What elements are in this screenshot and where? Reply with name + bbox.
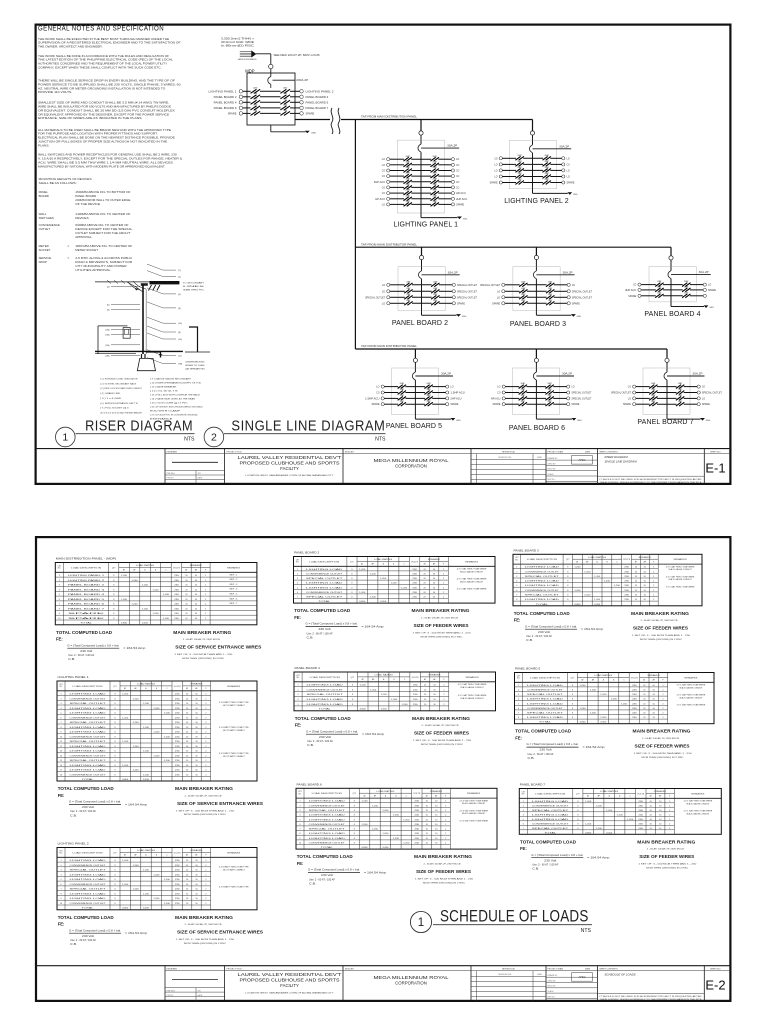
- svg-text:2: 2: [205, 580, 206, 582]
- svg-text:8: 8: [60, 727, 61, 729]
- svg-text:230 Volt: 230 Volt: [82, 806, 95, 809]
- svg-text:LOAD RATING: LOAD RATING: [588, 556, 607, 559]
- svg-text:8: 8: [354, 810, 355, 812]
- svg-text:8: 8: [577, 805, 578, 807]
- svg-text:NO.: NO.: [58, 568, 62, 570]
- svg-text:BREAKER: BREAKER: [648, 674, 661, 677]
- svg-text:LIGHTING LOAD: LIGHTING LOAD: [70, 731, 107, 734]
- svg-text:48 X 18 WATT COMPACT: 48 X 18 WATT COMPACT: [223, 868, 246, 871]
- svg-text:RISER TO LOAD: RISER TO LOAD: [186, 364, 205, 367]
- svg-text:8: 8: [577, 828, 578, 830]
- svg-text:THEIR SURVEY, ISSUED EXPRESS: THEIR SURVEY, ISSUED EXPRESSLY TO THE PR…: [600, 481, 703, 484]
- svg-text:LO: LO: [497, 289, 500, 293]
- svg-text:230: 230: [174, 613, 179, 615]
- svg-text:LIGHTING PANEL 1: LIGHTING PANEL 1: [393, 222, 458, 229]
- svg-text:LOAD RATING: LOAD RATING: [594, 674, 613, 677]
- svg-text:A: A: [144, 569, 146, 572]
- svg-text:8: 8: [351, 578, 352, 580]
- svg-text:4: 4: [299, 815, 300, 817]
- svg-text:PANEL BOARD 7: PANEL BOARD 7: [520, 783, 546, 787]
- svg-text:230: 230: [412, 569, 417, 571]
- svg-text:AF: AF: [592, 679, 594, 682]
- svg-text:20AT: 20AT: [433, 177, 438, 180]
- svg-text:8: 8: [114, 727, 115, 729]
- svg-text:CO: CO: [382, 169, 385, 173]
- svg-text:20: 20: [185, 604, 187, 606]
- svg-text:in 80mm(D) RSC: in 80mm(D) RSC: [221, 44, 254, 48]
- svg-text:2 - 60 AT/ 100 AF, 2P, 230V MC: 2 - 60 AT/ 100 AF, 2P, 230V MCCB: [421, 616, 459, 619]
- svg-text:2 - 60 AT/ 100 AF, 2P, 230V MC: 2 - 60 AT/ 100 AF, 2P, 230V MCCB: [424, 862, 462, 865]
- svg-text:5: 5: [297, 587, 298, 589]
- svg-text:REMARKS: REMARKS: [227, 851, 241, 854]
- svg-text:LO: LO: [567, 168, 570, 172]
- svg-text:CONVENIENCE OUTLET: CONVENIENCE OUTLET: [525, 590, 560, 592]
- svg-text:1,200: 1,200: [133, 746, 139, 748]
- svg-text:SPECIAL OUTLET: SPECIAL OUTLET: [70, 721, 108, 724]
- svg-text:50: 50: [433, 689, 435, 691]
- svg-text:NTS: NTS: [375, 437, 386, 443]
- svg-text:230: 230: [175, 884, 180, 886]
- svg-text:BREAKER: BREAKER: [428, 558, 441, 561]
- svg-text:QTY: QTY: [113, 686, 117, 688]
- svg-text:SPECIAL OUTLET: SPECIAL OUTLET: [572, 295, 592, 299]
- svg-text:LO: LO: [571, 385, 574, 389]
- svg-text:LAUREL VALLEY RESIDENTIAL DEV': LAUREL VALLEY RESIDENTIAL DEV'T: [238, 972, 342, 977]
- svg-text:20: 20: [424, 578, 426, 580]
- svg-text:SIZE OF FEEDER WIRES: SIZE OF FEEDER WIRES: [633, 626, 688, 631]
- svg-text:20: 20: [186, 860, 188, 862]
- svg-text:2: 2: [205, 865, 206, 867]
- svg-text:1,200: 1,200: [133, 770, 139, 772]
- svg-text:G = (Total Computed Load) x 0.: G = (Total Computed Load) x 0.8 + bal.: [306, 730, 358, 733]
- svg-text:230: 230: [624, 581, 629, 583]
- svg-text:PANEL BOARD 7: PANEL BOARD 7: [637, 419, 693, 426]
- svg-text:TOTAL COMPUTED LOAD: TOTAL COMPUTED LOAD: [58, 786, 115, 791]
- svg-text:Use: 2 - 60 AT / 100 AF: Use: 2 - 60 AT / 100 AF: [528, 753, 555, 756]
- svg-text:SHEET CONTENTS: SHEET CONTENTS: [599, 451, 618, 453]
- svg-text:C.B.: C.B.: [307, 637, 314, 640]
- svg-text:50: 50: [195, 774, 197, 776]
- svg-text:2: 2: [205, 694, 206, 696]
- svg-text:OF THE DEVICE: OF THE DEVICE: [75, 202, 100, 206]
- svg-text:LOAD RATING: LOAD RATING: [376, 790, 395, 793]
- svg-text:AF: AF: [435, 795, 437, 798]
- svg-text:30A,2P: 30A,2P: [562, 373, 573, 376]
- svg-text:CO: CO: [628, 385, 631, 389]
- svg-text:4,800: 4,800: [122, 908, 128, 910]
- svg-text:20: 20: [185, 599, 187, 601]
- svg-text:20AT: 20AT: [433, 280, 438, 283]
- svg-text:7: 7: [299, 829, 300, 831]
- svg-text:REVISION DES.: REVISION DES.: [498, 457, 512, 459]
- svg-text:A: A: [603, 679, 605, 682]
- svg-text:4 X 5 GAT TWIN / TUBE WERE: 4 X 5 GAT TWIN / TUBE WERE: [677, 694, 706, 697]
- svg-text:50: 50: [433, 587, 435, 589]
- svg-text:CONVENIENCE OUTLET: CONVENIENCE OUTLET: [70, 884, 107, 886]
- svg-text:B: B: [156, 855, 158, 857]
- svg-text:1,200: 1,200: [362, 801, 368, 803]
- svg-text:LOAD DESCRIPTION: LOAD DESCRIPTION: [530, 676, 561, 679]
- svg-text:230: 230: [175, 765, 180, 767]
- svg-text:8: 8: [113, 599, 114, 601]
- svg-text:2: 2: [205, 713, 206, 715]
- svg-text:230: 230: [415, 805, 420, 807]
- svg-text:1,200: 1,200: [153, 589, 159, 591]
- svg-text:LIGHTING LOAD: LIGHTING LOAD: [70, 859, 107, 862]
- svg-text:AF: AF: [586, 561, 588, 564]
- svg-text:230: 230: [175, 708, 180, 710]
- svg-text:1,200: 1,200: [596, 828, 602, 830]
- svg-text:20: 20: [426, 833, 428, 835]
- svg-text:2: 2: [60, 698, 61, 700]
- svg-text:VOLTS: VOLTS: [631, 677, 639, 679]
- svg-text:LO: LO: [376, 385, 379, 389]
- svg-text:1,200: 1,200: [617, 814, 623, 816]
- svg-text:GND.: GND.: [573, 194, 578, 196]
- svg-text:MDP - 3: MDP - 3: [230, 584, 238, 586]
- svg-text:TOTAL: TOTAL: [318, 600, 332, 603]
- svg-text:REMARKS: REMARKS: [227, 566, 241, 569]
- svg-text:LIGHTING LOAD: LIGHTING LOAD: [70, 745, 107, 748]
- svg-text:3: 3: [299, 810, 300, 812]
- svg-text:20AT: 20AT: [406, 287, 411, 290]
- svg-text:CONVENIENCE OUTLET: CONVENIENCE OUTLET: [309, 805, 346, 807]
- svg-text:4,800: 4,800: [362, 847, 368, 849]
- svg-text:2: 2: [443, 583, 444, 585]
- svg-text:1,200: 1,200: [359, 592, 365, 594]
- svg-text:20: 20: [186, 898, 188, 900]
- svg-text:MDP - 5: MDP - 5: [230, 594, 238, 596]
- svg-text:SHALL BE AS FOLLOWS:: SHALL BE AS FOLLOWS:: [39, 181, 77, 185]
- svg-text:230: 230: [624, 599, 629, 601]
- svg-text:VOLTS: VOLTS: [173, 567, 181, 569]
- svg-text:CONVENIENCE OUTLET: CONVENIENCE OUTLET: [70, 736, 107, 738]
- svg-text:SPARE: SPARE: [708, 288, 716, 292]
- svg-text:6: 6: [59, 599, 60, 601]
- svg-text:C: C: [166, 688, 168, 690]
- svg-text:BUILDER: BUILDER: [345, 451, 354, 453]
- svg-text:230: 230: [415, 815, 420, 817]
- svg-text:20: 20: [186, 751, 188, 753]
- svg-text:PTR NO: PTR NO: [167, 478, 174, 480]
- svg-text:8: 8: [113, 608, 114, 610]
- svg-text:20AT: 20AT: [651, 394, 656, 397]
- svg-text:SINGLE LINE DIAGRAM: SINGLE LINE DIAGRAM: [231, 419, 385, 435]
- svg-text:2: 2: [205, 765, 206, 767]
- svg-text:20: 20: [424, 704, 426, 706]
- svg-text:50: 50: [435, 805, 437, 807]
- svg-text:2: 2: [653, 599, 654, 601]
- svg-text:AF: AF: [433, 678, 435, 681]
- svg-text:SPECIAL OUTLET: SPECIAL OUTLET: [571, 396, 591, 400]
- svg-text:2: 2: [445, 810, 446, 812]
- svg-text:8: 8: [299, 833, 300, 835]
- svg-text:G = (Total Computed Load) x 0.: G = (Total Computed Load) x 0.8 + bal.: [69, 801, 121, 804]
- svg-text:1,200: 1,200: [121, 575, 127, 577]
- svg-text:7: 7: [60, 889, 61, 891]
- svg-text:20: 20: [424, 699, 426, 701]
- svg-text:20: 20: [424, 587, 426, 589]
- svg-text:2: 2: [205, 604, 206, 606]
- svg-text:UTILITIES APPROVAL.: UTILITIES APPROVAL.: [75, 268, 111, 272]
- svg-text:8: 8: [567, 571, 568, 573]
- svg-text:1,200: 1,200: [142, 608, 148, 610]
- svg-text:LIGHTING LOAD: LIGHTING LOAD: [532, 813, 570, 816]
- svg-text:50: 50: [435, 843, 437, 845]
- svg-text:20: 20: [185, 585, 187, 587]
- svg-text:50: 50: [433, 699, 435, 701]
- svg-text:2: 2: [523, 805, 524, 807]
- svg-text:50: 50: [653, 708, 655, 710]
- svg-text:230: 230: [175, 903, 180, 905]
- svg-text:TOTAL: TOTAL: [539, 721, 553, 724]
- svg-text:LOAD DESCRIPTION: LOAD DESCRIPTION: [71, 566, 102, 569]
- svg-text:3,450: 3,450: [380, 601, 386, 603]
- svg-text:TOTAL: TOTAL: [82, 907, 96, 910]
- svg-text:SPARE: SPARE: [456, 202, 464, 206]
- svg-text:1,200: 1,200: [590, 713, 596, 715]
- svg-text:1 SET OF: 3 - 500 MCM THHN AND: 1 SET OF: 3 - 500 MCM THHN AND 1 - 250: [176, 809, 235, 812]
- svg-text:DATE: DATE: [198, 994, 203, 997]
- svg-text:LO: LO: [382, 202, 385, 206]
- svg-text:TOTAL: TOTAL: [319, 708, 333, 711]
- svg-text:2: 2: [516, 571, 517, 573]
- svg-text:1: 1: [418, 917, 424, 929]
- svg-text:SHEET CONTENTS: SHEET CONTENTS: [599, 969, 618, 971]
- svg-text:1,200: 1,200: [153, 755, 159, 757]
- svg-text:CONVENIENCE OUTLET: CONVENIENCE OUTLET: [307, 689, 345, 691]
- svg-text:Use: 2 - 60 AT / 100 AF: Use: 2 - 60 AT / 100 AF: [532, 864, 559, 867]
- svg-text:GND.: GND.: [311, 133, 317, 135]
- svg-text:LIGHTING PANEL 2: LIGHTING PANEL 2: [68, 579, 106, 582]
- svg-text:50: 50: [195, 884, 197, 886]
- svg-text:2: 2: [205, 618, 206, 620]
- svg-text:2: 2: [662, 717, 663, 719]
- svg-text:20AT: 20AT: [545, 172, 550, 175]
- svg-text:LIGHTING PANEL 1: LIGHTING PANEL 1: [209, 89, 237, 93]
- svg-text:( 1 ) FLEXIBLE COND. INSULATOR: ( 1 ) FLEXIBLE COND. INSULATOR: [100, 378, 138, 381]
- svg-text:30A,2P: 30A,2P: [447, 145, 458, 148]
- svg-text:50: 50: [195, 698, 197, 700]
- svg-text:THE OWNER, ARCHITECT AND ENGIN: THE OWNER, ARCHITECT AND ENGINEER.: [38, 45, 103, 49]
- svg-text:TOTAL COMPUTED LOAD: TOTAL COMPUTED LOAD: [294, 608, 351, 613]
- svg-text:A: A: [597, 561, 599, 564]
- svg-text:8: 8: [114, 736, 115, 738]
- svg-text:1,200: 1,200: [600, 717, 606, 719]
- svg-text:4 X 8 WATT TWIN / TUBE TYPE: 4 X 8 WATT TWIN / TUBE TYPE: [219, 866, 249, 869]
- svg-text:1,200: 1,200: [164, 760, 170, 762]
- svg-text:1,200: 1,200: [372, 805, 378, 807]
- svg-text:LIGHTING LOAD: LIGHTING LOAD: [525, 584, 560, 587]
- svg-text:4,800: 4,800: [360, 709, 366, 711]
- svg-text:4 X 5 GAT TWIN / TUBE WERE: 4 X 5 GAT TWIN / TUBE WERE: [458, 683, 487, 686]
- svg-text:IN A 20 GAUGE CONDUIT: IN A 20 GAUGE CONDUIT: [461, 686, 485, 689]
- svg-text:8: 8: [351, 574, 352, 576]
- svg-text:20AT: 20AT: [548, 293, 553, 296]
- svg-text:MAIN BREAKER RATING: MAIN BREAKER RATING: [637, 839, 695, 844]
- svg-text:6: 6: [60, 884, 61, 886]
- svg-text:PANEL BOARD 4: PANEL BOARD 4: [68, 593, 106, 596]
- svg-text:8: 8: [60, 893, 61, 895]
- svg-text:1,200: 1,200: [122, 884, 128, 886]
- svg-text:1,200: 1,200: [143, 774, 149, 776]
- svg-text:8: 8: [114, 879, 115, 881]
- svg-text:IT SHOULD NOT BE USED FOR A DI: IT SHOULD NOT BE USED FOR A DIFFERENT PR…: [600, 478, 703, 481]
- svg-text:(10): (10): [178, 323, 182, 325]
- svg-text:20: 20: [424, 592, 426, 594]
- svg-text:8: 8: [516, 599, 517, 601]
- svg-text:8: 8: [354, 805, 355, 807]
- svg-text:4,800: 4,800: [122, 779, 128, 781]
- svg-text:1,200: 1,200: [585, 801, 591, 803]
- svg-text:9: 9: [60, 898, 61, 900]
- svg-text:4 X 5 GAT TWIN / TUBE WERE: 4 X 5 GAT TWIN / TUBE WERE: [666, 575, 695, 578]
- svg-text:(3): (3): [107, 310, 110, 312]
- svg-text:2: 2: [205, 746, 206, 748]
- svg-text:230: 230: [175, 703, 180, 705]
- svg-text:THEIR SURVEY, ISSUED EXPRESS: THEIR SURVEY, ISSUED EXPRESSLY TO THE PR…: [600, 998, 703, 1001]
- svg-text:PANEL BOARD 2: PANEL BOARD 2: [294, 551, 320, 555]
- svg-text:PROPOSED CLUBHOUSE AND SPORTS: PROPOSED CLUBHOUSE AND SPORTS: [240, 978, 340, 983]
- svg-text:SERVICE ENTRANCE: SERVICE ENTRANCE: [238, 58, 257, 61]
- svg-text:SCALE:: SCALE:: [548, 473, 555, 476]
- svg-text:8: 8: [113, 594, 114, 596]
- svg-text:GND.: GND.: [456, 420, 461, 422]
- svg-text:50: 50: [435, 838, 437, 840]
- svg-text:3: 3: [59, 585, 60, 587]
- svg-text:1 SET OF: 3 - 500 MCM THHN AND: 1 SET OF: 3 - 500 MCM THHN AND 1 - 250: [632, 634, 691, 637]
- svg-text:50: 50: [433, 569, 435, 571]
- svg-text:20AT: 20AT: [517, 172, 522, 175]
- svg-text:MAIN BREAKER RATING: MAIN BREAKER RATING: [631, 611, 689, 616]
- svg-text:SCHEDULE OF LOADS: SCHEDULE OF LOADS: [605, 972, 636, 976]
- svg-text:NTS: NTS: [581, 928, 592, 934]
- svg-text:20AT: 20AT: [521, 299, 526, 302]
- svg-text:2: 2: [445, 843, 446, 845]
- svg-text:G = (Total Computed Load) x 0.: G = (Total Computed Load) x 0.8 + bal.: [306, 623, 358, 626]
- svg-text:20: 20: [650, 810, 652, 812]
- svg-text:20: 20: [186, 755, 188, 757]
- svg-text:50: 50: [435, 815, 437, 817]
- svg-text:20AT: 20AT: [517, 178, 522, 181]
- svg-text:= 164.54 Amp: = 164.54 Amp: [362, 733, 385, 736]
- svg-text:MAIN BREAKER RATING: MAIN BREAKER RATING: [173, 630, 231, 635]
- svg-text:20: 20: [185, 608, 187, 610]
- svg-text:3,450: 3,450: [143, 908, 149, 910]
- svg-text:CO: CO: [456, 174, 459, 178]
- svg-text:UNDERGROUND: UNDERGROUND: [186, 362, 205, 364]
- svg-text:4: 4: [297, 583, 298, 585]
- svg-text:Use: 2 - 60 AT / 100 AF: Use: 2 - 60 AT / 100 AF: [70, 939, 97, 942]
- svg-text:G = (Total Computed Load) x 0.: G = (Total Computed Load) x 0.8 + bal.: [308, 869, 360, 872]
- svg-text:LIGHTING LOAD: LIGHTING LOAD: [532, 800, 570, 803]
- svg-text:20AT: 20AT: [521, 280, 526, 283]
- svg-text:LOAD RATING: LOAD RATING: [137, 683, 156, 686]
- svg-text:CONVENIENCE OUTLET: CONVENIENCE OUTLET: [70, 774, 107, 776]
- svg-text:20AT: 20AT: [253, 87, 258, 90]
- svg-text:= 164.54 Amp: = 164.54 Amp: [583, 746, 606, 749]
- svg-text:4: 4: [60, 708, 61, 710]
- svg-text:5: 5: [518, 703, 519, 705]
- svg-text:SPECIAL OUTLET: SPECIAL OUTLET: [480, 283, 500, 287]
- svg-text:E-1: E-1: [705, 461, 725, 476]
- svg-text:C: C: [404, 679, 406, 681]
- svg-text:48 X 18 WATT COMPACT: 48 X 18 WATT COMPACT: [223, 729, 246, 732]
- svg-text:1: 1: [518, 685, 519, 687]
- svg-text:APEC: APEC: [578, 458, 585, 462]
- svg-text:8: 8: [354, 824, 355, 826]
- svg-text:ROD WITH CLAMP: ROD WITH CLAMP: [150, 410, 181, 413]
- svg-text:SWITCHES: SWITCHES: [39, 216, 54, 220]
- svg-text:PROJECT TEAM: PROJECT TEAM: [548, 450, 564, 453]
- svg-text:50: 50: [195, 755, 197, 757]
- svg-text:6: 6: [518, 708, 519, 710]
- svg-text:1,200: 1,200: [381, 694, 387, 696]
- svg-text:AT: AT: [185, 569, 187, 572]
- svg-text:MDP - 1: MDP - 1: [230, 574, 238, 576]
- svg-text:20AT: 20AT: [517, 166, 522, 169]
- svg-text:QTY: QTY: [113, 852, 117, 854]
- svg-text:4 X 5 GAT TWIN / TUBE WERE: 4 X 5 GAT TWIN / TUBE WERE: [684, 800, 713, 803]
- svg-text:8: 8: [114, 703, 115, 705]
- svg-text:8: 8: [351, 597, 352, 599]
- svg-text:SPECIAL OUTLET: SPECIAL OUTLET: [309, 828, 347, 831]
- svg-text:SCHEDULE OF LOADS: SCHEDULE OF LOADS: [440, 908, 589, 926]
- svg-text:LIGHTING LOAD: LIGHTING LOAD: [527, 716, 564, 719]
- svg-text:2: 2: [653, 576, 654, 578]
- svg-text:1,200: 1,200: [164, 903, 170, 905]
- svg-text:Use: 2 - 60 AT / 100 AF: Use: 2 - 60 AT / 100 AF: [526, 635, 553, 638]
- svg-text:PME REG: PME REG: [167, 473, 176, 475]
- svg-text:SPECIAL OUTLET: SPECIAL OUTLET: [527, 712, 565, 715]
- svg-text:2: 2: [205, 599, 206, 601]
- svg-text:A: A: [145, 687, 147, 690]
- svg-text:(1A): (1A): [105, 344, 109, 347]
- svg-text:TOTAL COMPUTED LOAD: TOTAL COMPUTED LOAD: [514, 611, 571, 616]
- svg-text:1,200: 1,200: [590, 690, 596, 692]
- svg-text:SIZE OF SERVICE ENTRANCE WIRES: SIZE OF SERVICE ENTRANCE WIRES: [177, 801, 263, 806]
- svg-text:8: 8: [567, 595, 568, 597]
- svg-text:CHKD BY:: CHKD BY:: [548, 980, 557, 982]
- svg-text:50: 50: [659, 814, 661, 816]
- svg-text:8: 8: [114, 722, 115, 724]
- svg-text:C.B.: C.B.: [309, 883, 316, 886]
- svg-text:230: 230: [175, 865, 180, 867]
- svg-text:230: 230: [174, 589, 179, 591]
- svg-text:GND.: GND.: [462, 316, 467, 318]
- svg-text:1 SET OF: 3 - 500 MCM THHN AND: 1 SET OF: 3 - 500 MCM THHN AND 1 - 250: [638, 863, 697, 866]
- svg-text:LIGHTING LOAD: LIGHTING LOAD: [306, 586, 344, 589]
- svg-text:20: 20: [635, 585, 637, 587]
- svg-text:2: 2: [299, 805, 300, 807]
- svg-text:20: 20: [185, 575, 187, 577]
- svg-text:B: B: [619, 796, 621, 798]
- svg-text:1,200: 1,200: [153, 732, 159, 734]
- svg-text:LOAD DESCRIPTION: LOAD DESCRIPTION: [309, 560, 340, 563]
- svg-text:AT: AT: [635, 561, 637, 564]
- svg-text:B: B: [613, 680, 615, 682]
- svg-text:1,200: 1,200: [604, 581, 610, 583]
- svg-text:20: 20: [424, 574, 426, 576]
- svg-text:8: 8: [114, 732, 115, 734]
- svg-text:1: 1: [523, 801, 524, 803]
- svg-text:PANEL BOARD 4: PANEL BOARD 4: [644, 311, 700, 318]
- svg-text:CO: CO: [456, 185, 459, 189]
- svg-text:2: 2: [205, 585, 206, 587]
- svg-text:6: 6: [299, 824, 300, 826]
- svg-text:20AT: 20AT: [253, 92, 258, 95]
- svg-text:LOCATION: BRGY. SAN ANDARES C: LOCATION: BRGY. SAN ANDARES CORN OF ALOB…: [246, 474, 335, 477]
